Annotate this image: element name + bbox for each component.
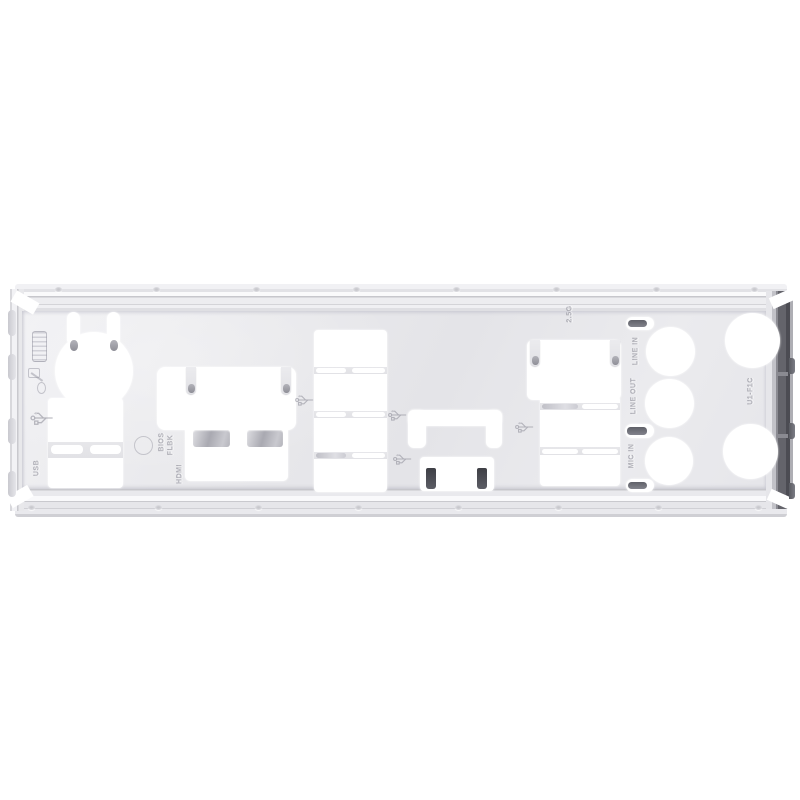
spring-dimple (612, 356, 619, 365)
spring-dimple (532, 356, 539, 365)
flange-dimple (755, 505, 762, 510)
bios-stamp-line1: BIOS (159, 432, 166, 451)
flange-dimple (153, 287, 160, 292)
flange-dimple (553, 287, 560, 292)
flange-dimple (255, 505, 262, 510)
ps2-spring-ear (67, 312, 80, 342)
ground-tab-dark (477, 468, 487, 489)
bridge-slot (316, 412, 346, 417)
round-port-cutout (725, 313, 780, 368)
usb-stamp: USB (34, 460, 41, 476)
flange-dimple (155, 505, 162, 510)
vga-port-icon (32, 331, 47, 362)
spring-finger-dark (628, 320, 647, 327)
usb-trident-icon (388, 409, 408, 422)
ground-finger (193, 430, 230, 447)
top-flange (15, 284, 787, 312)
bridge-slot (582, 404, 618, 409)
photo-canvas: { "photo": { "subject": "Silver stamped-… (0, 0, 800, 800)
bridge-slot (316, 453, 346, 458)
flange-dimple (28, 505, 35, 510)
bridge-slot (51, 445, 83, 454)
bridge-slot (352, 368, 385, 373)
flange-dimple (655, 505, 662, 510)
flange-dimple (455, 505, 462, 510)
audio-jack-cutout-line-in (646, 327, 695, 376)
flange-dimple (751, 287, 758, 292)
usb-trident-icon (295, 394, 315, 407)
flange-dimple (453, 287, 460, 292)
right-edge-tab (789, 483, 795, 499)
ground-finger (247, 430, 283, 447)
right-fold-gap (776, 372, 788, 376)
bridge-slot (352, 453, 385, 458)
audio-jack-cutout-line-out (645, 379, 694, 428)
bridge-slot (90, 445, 121, 454)
left-edge-bump (8, 310, 16, 336)
left-edge-bump (8, 418, 16, 444)
spring-finger-dark (628, 482, 647, 489)
flange-dimple (355, 505, 362, 510)
round-port-cutout (723, 424, 778, 479)
usb-trident-icon (515, 421, 535, 434)
usb-trident-icon (30, 410, 54, 426)
usb-block-cutout-left (185, 418, 288, 481)
display-port-cutout-side (486, 410, 502, 448)
flange-dimple (55, 287, 62, 292)
mouse-icon (37, 382, 46, 394)
bridge-slot (542, 449, 578, 454)
flange-dimple (555, 505, 562, 510)
right-edge-tab (789, 423, 795, 439)
flange-dimple (253, 287, 260, 292)
left-edge-bump (8, 354, 16, 380)
spring-dimple (188, 384, 195, 393)
lan-speed-stamp: 2.5G (567, 305, 574, 322)
flange-dimple (653, 287, 660, 292)
bios-button-icon (134, 436, 153, 455)
bottom-flange (15, 489, 787, 517)
bridge-slot (316, 368, 346, 373)
audio-label-line-in: LINE IN (633, 337, 640, 365)
hdmi-stamp: HDMI (177, 464, 184, 484)
ground-tab-dark (426, 468, 436, 489)
display-port-cutout-side (408, 410, 426, 448)
spring-dimple (70, 340, 78, 351)
right-edge-tab (789, 358, 795, 374)
bios-stamp-line2: FLBK (168, 435, 175, 456)
bridge-slot (542, 404, 578, 409)
audio-jack-cutout-mic-in (645, 437, 693, 485)
left-edge-bump (8, 471, 16, 497)
bridge-slot (582, 449, 618, 454)
part-code-stamp: U1-F1C (748, 377, 755, 405)
audio-label-line-out: LINE OUT (631, 378, 638, 415)
ps2-spring-ear (107, 312, 120, 342)
lan-port-cutout-right (527, 340, 621, 400)
audio-label-mic-in: MIC IN (629, 444, 636, 469)
usb-trident-icon (393, 453, 413, 466)
spring-finger-dark (627, 427, 647, 435)
spring-dimple (110, 340, 118, 351)
io-shield: 2.5G LINE IN LINE OUT MIC IN U1-F1C HDMI… (10, 284, 793, 517)
spring-dimple (283, 384, 290, 393)
bridge-slot (352, 412, 385, 417)
right-fold-gap (776, 434, 788, 438)
flange-dimple (353, 287, 360, 292)
